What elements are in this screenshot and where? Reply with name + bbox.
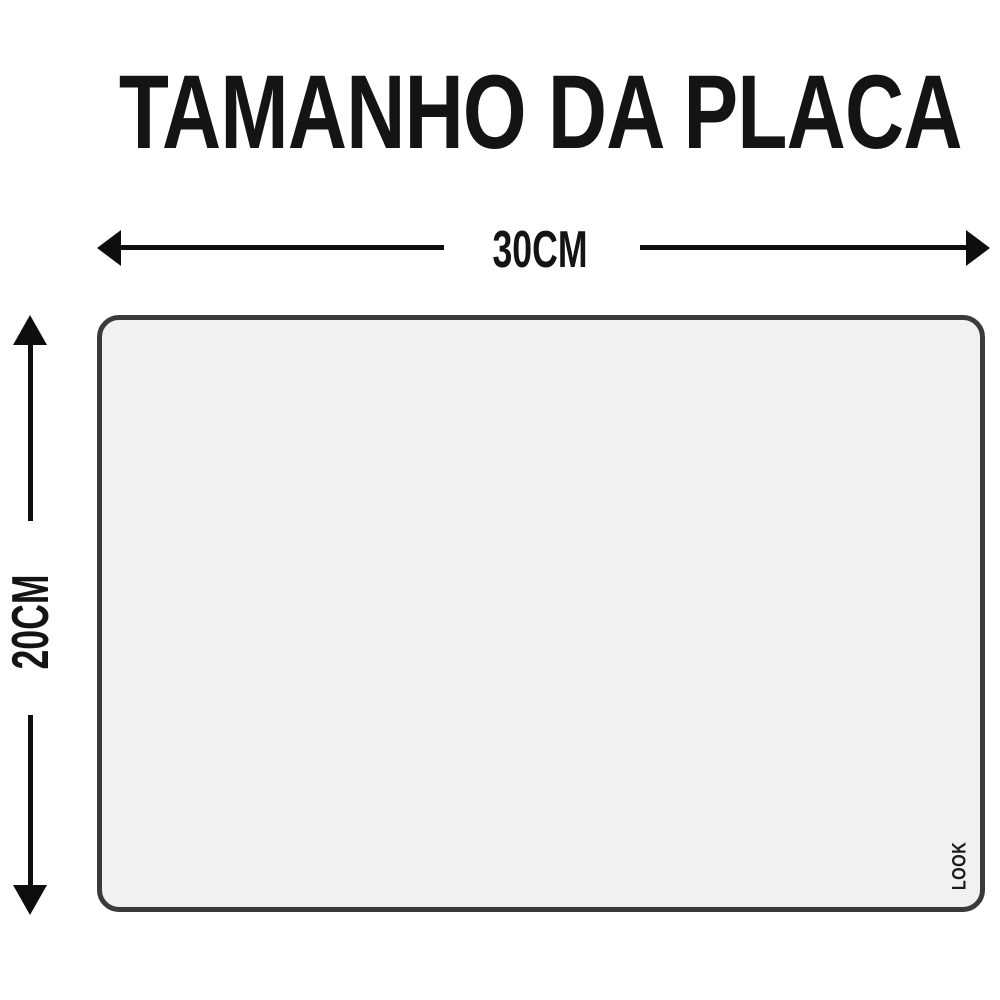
- height-dimension-label: 20CM: [5, 574, 57, 669]
- arrowhead-down-icon: [13, 885, 47, 915]
- arrowhead-left-icon: [97, 230, 121, 266]
- width-arrow-line-left: [119, 245, 444, 250]
- page-title-text: TAMANHO DA PLACA: [119, 60, 962, 165]
- plate-outline: [97, 315, 985, 912]
- arrowhead-up-icon: [13, 315, 47, 345]
- width-dimension-label: 30CM: [492, 224, 587, 276]
- brand-label: LOOK: [951, 842, 970, 890]
- width-arrow-line-right: [640, 245, 968, 250]
- arrowhead-right-icon: [966, 230, 990, 266]
- height-arrow-line-bottom: [28, 715, 33, 887]
- page-title: TAMANHO DA PLACA: [0, 60, 1000, 165]
- height-arrow-line-top: [28, 343, 33, 521]
- plate-size-diagram: TAMANHO DA PLACA 30CM 20CM LOOK: [0, 0, 1000, 1000]
